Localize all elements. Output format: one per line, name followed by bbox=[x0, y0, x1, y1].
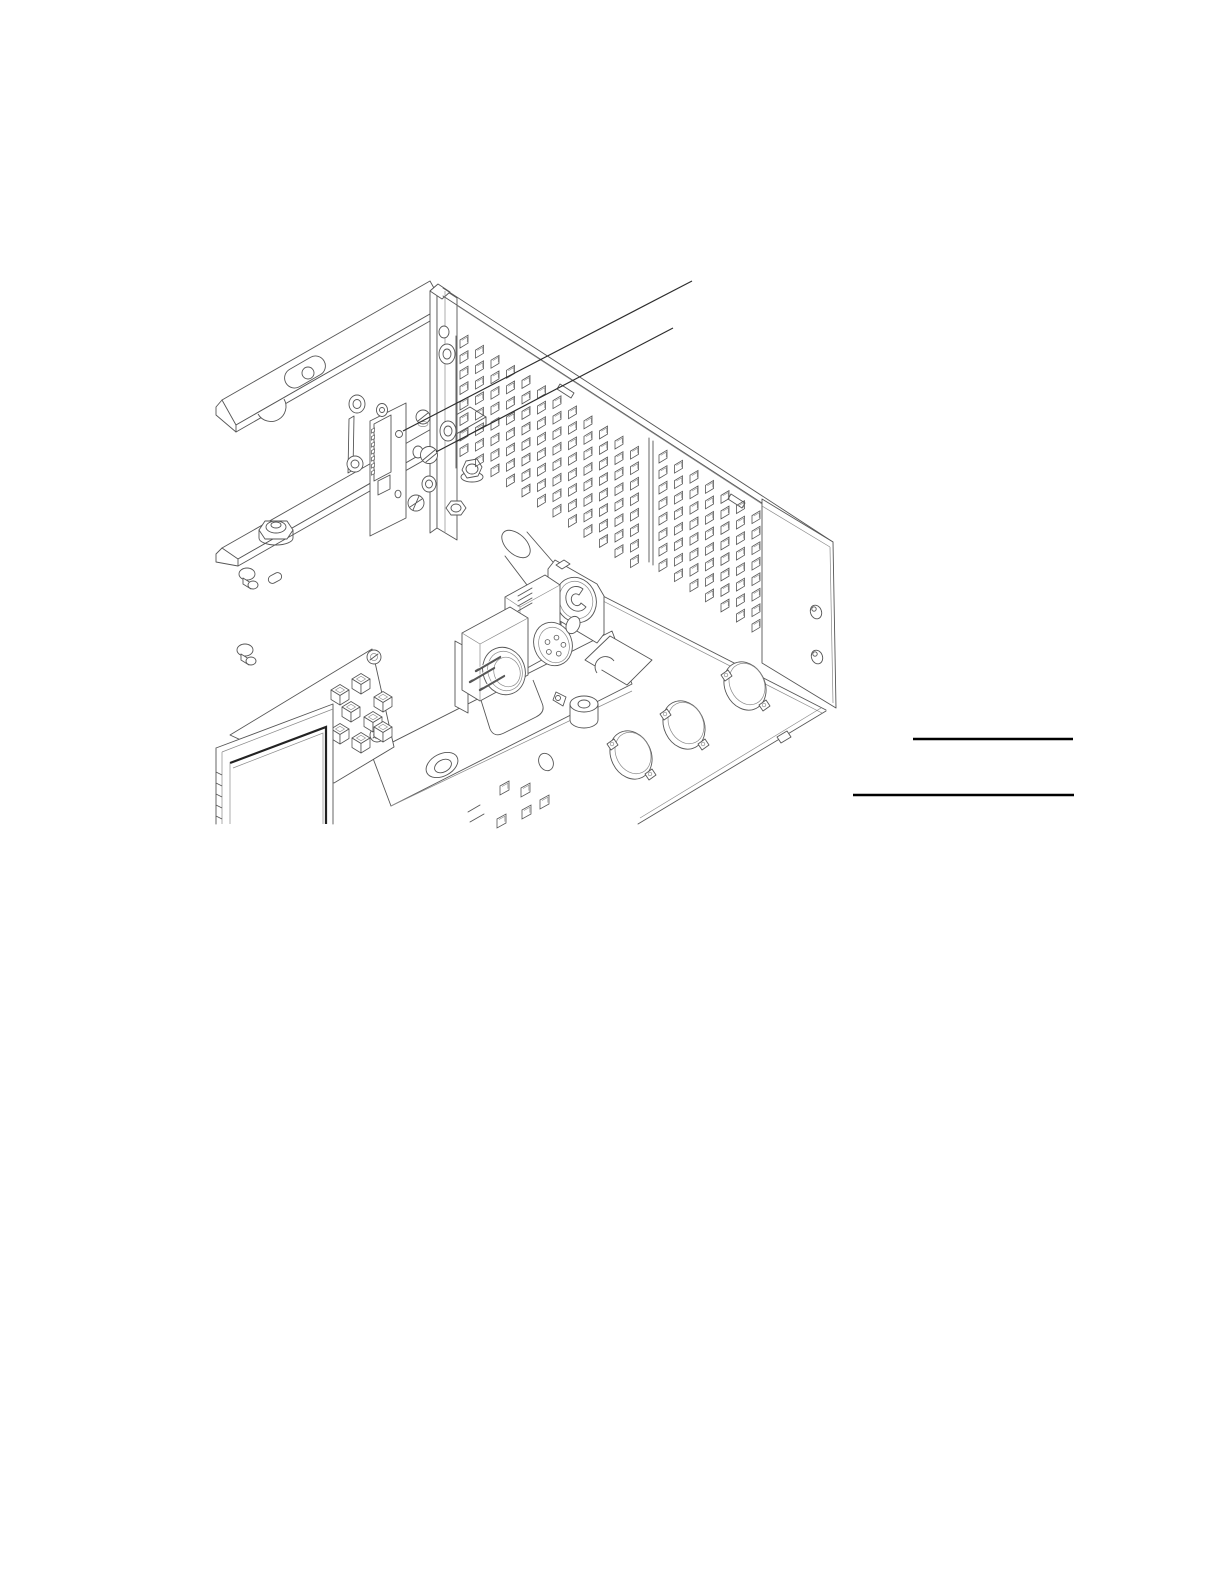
interface-pcb bbox=[370, 403, 406, 536]
hex-bolt bbox=[461, 459, 483, 482]
nut bbox=[422, 476, 436, 492]
pad bbox=[267, 571, 283, 585]
manual-page bbox=[0, 0, 1224, 1584]
vent-divider bbox=[649, 438, 653, 565]
pcb-standoff-screw bbox=[367, 650, 381, 664]
wall-hardware bbox=[347, 395, 365, 473]
caption-rule-lines bbox=[853, 739, 1074, 795]
chassis-illustration bbox=[0, 0, 1224, 1584]
hex-nut bbox=[446, 501, 466, 515]
edge-connector bbox=[374, 415, 391, 481]
pcb-hole bbox=[396, 431, 403, 438]
vent-panel-left bbox=[460, 335, 639, 567]
keypad-lcd-board bbox=[216, 649, 394, 824]
rear-flange-rail bbox=[216, 281, 444, 432]
connector-ear bbox=[377, 404, 388, 417]
rivet bbox=[239, 568, 258, 589]
rivet bbox=[237, 644, 256, 665]
right-side-panel bbox=[762, 499, 836, 708]
screw bbox=[408, 495, 424, 511]
callout-2 bbox=[436, 328, 673, 452]
